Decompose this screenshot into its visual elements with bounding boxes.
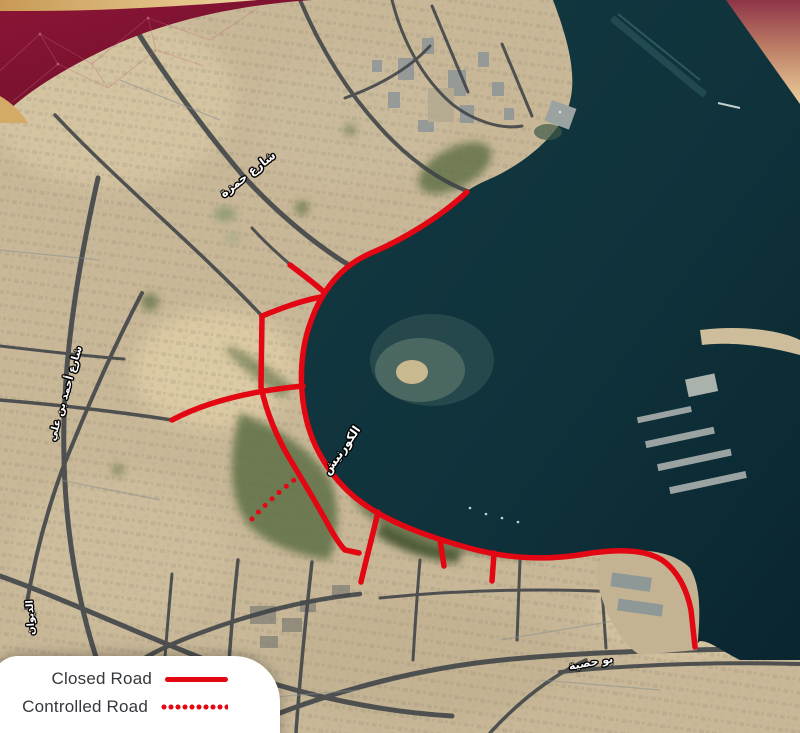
legend-item-controlled-road: Controlled Road — [0, 693, 280, 721]
controlled-road-label: Controlled Road — [22, 697, 148, 717]
corner-decoration-top-right — [720, 0, 800, 106]
corner-decoration-top-left — [0, 0, 322, 130]
controlled-road-line-swatch — [161, 704, 228, 710]
map-canvas: شارع حمزة شارع أحمد بن علي الكورنيش الدي… — [0, 0, 800, 733]
legend-card: Closed Road Controlled Road — [0, 656, 280, 733]
closed-road-line-swatch — [165, 677, 228, 682]
legend-item-closed-road: Closed Road — [0, 665, 280, 693]
closed-road-label: Closed Road — [52, 669, 152, 689]
